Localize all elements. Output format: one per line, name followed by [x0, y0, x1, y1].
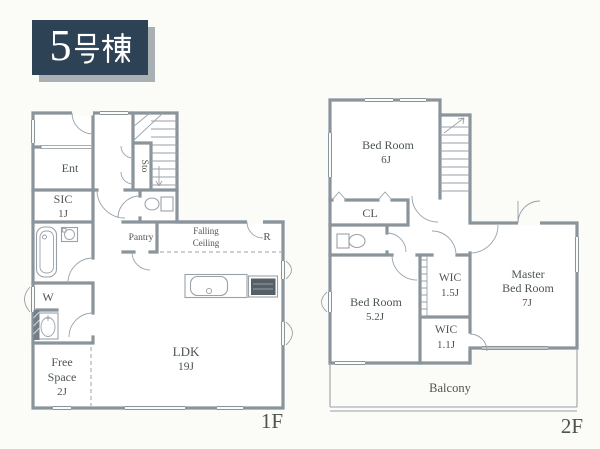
floor1-label: 1F	[261, 409, 283, 433]
label-master-2: Bed Room	[502, 281, 554, 295]
label-bedroom5: Bed Room	[350, 295, 402, 309]
label-master-1: Master	[511, 267, 544, 281]
label-sic-size: 1J	[58, 208, 69, 220]
casement-window-arc	[322, 292, 328, 312]
building-number: 5	[50, 24, 72, 68]
casement-window-arc	[25, 287, 31, 312]
label-wic-b: WIC	[435, 324, 458, 336]
floor2-label: 2F	[561, 414, 583, 438]
casement-window-arc	[286, 322, 293, 345]
label-free-space-2: Space	[48, 370, 77, 384]
label-bedroom5-size: 5.2J	[366, 311, 385, 323]
label-refrigerator: R	[263, 231, 271, 243]
casement-window-arc	[286, 261, 292, 279]
duct-hatch	[34, 310, 40, 340]
floor-interiors	[33, 100, 577, 408]
label-falling-ceiling-2: Ceiling	[193, 238, 220, 248]
label-washroom: W	[42, 290, 54, 304]
label-sic: SIC	[54, 192, 73, 206]
label-falling-ceiling-1: Falling	[193, 226, 219, 236]
label-closet: CL	[362, 206, 377, 220]
building-title-badge: 5	[32, 20, 148, 75]
label-balcony: Balcony	[429, 381, 471, 395]
kanji-gou-tou	[75, 31, 131, 65]
front-door-opening	[72, 111, 93, 116]
label-wic-a-size: 1.5J	[441, 287, 460, 299]
label-bedroom6: Bed Room	[362, 138, 414, 152]
label-pantry: Pantry	[129, 233, 154, 243]
label-ldk: LDK	[173, 344, 200, 359]
label-bedroom6-size: 6J	[381, 154, 392, 166]
label-wic-b-size: 1.1J	[437, 339, 456, 351]
label-free-space-1: Free	[51, 355, 72, 369]
label-entrance: Ent	[62, 161, 79, 175]
stove	[251, 279, 276, 296]
label-ldk-size: 19J	[178, 361, 195, 373]
label-master-size: 7J	[522, 297, 533, 309]
outward-door-arc	[518, 201, 540, 223]
label-storage: Sto	[139, 160, 149, 173]
floorplan-page: Ent SIC 1J Sto Pantry Falling Ceiling R …	[0, 0, 600, 449]
label-wic-a: WIC	[439, 272, 462, 284]
label-free-space-size: 2J	[57, 386, 68, 398]
